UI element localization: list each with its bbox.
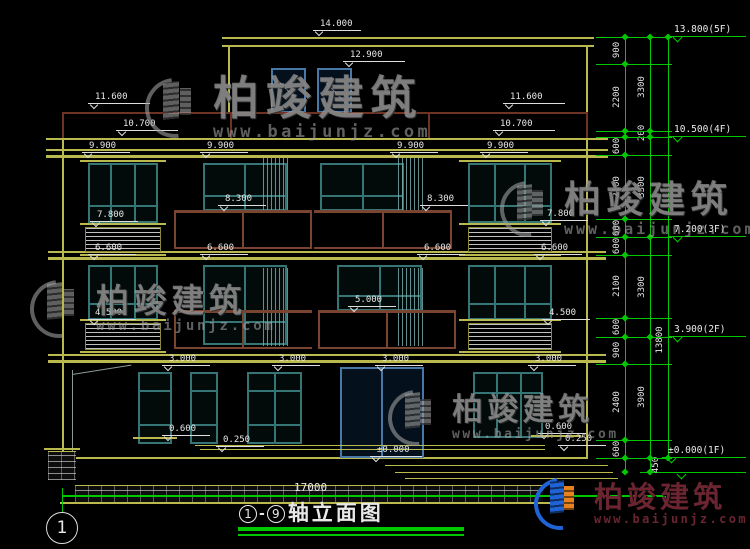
dim-label: 2200 bbox=[612, 86, 622, 108]
dim-label: 3300 bbox=[637, 276, 647, 298]
bay-window-2f-right bbox=[468, 265, 552, 320]
dim-ext-line bbox=[596, 337, 672, 338]
level-marker: 8.300 bbox=[218, 194, 266, 210]
watermark: 柏竣建筑 www.baijunjz.com bbox=[388, 390, 619, 446]
dim-label: 13800 bbox=[655, 326, 665, 353]
level-marker: 9.900 bbox=[480, 141, 528, 157]
bay-ledge bbox=[80, 351, 166, 353]
base-line bbox=[62, 457, 588, 459]
dim-label: 200 bbox=[637, 125, 647, 141]
penthouse-parapet-line bbox=[222, 37, 594, 39]
title-underline-thin bbox=[238, 534, 464, 536]
level-marker: 9.900 bbox=[390, 141, 438, 157]
dim-ext-line bbox=[596, 155, 672, 156]
watermark: 柏竣建筑 www.baijunjz.com bbox=[145, 74, 431, 142]
dim-ext-line bbox=[596, 255, 672, 256]
floor-level-value: ±0.000(1F) bbox=[662, 445, 746, 457]
level-marker: 11.600 bbox=[503, 92, 565, 108]
parapet-post bbox=[586, 112, 588, 140]
brand-url: www.baijunjz.com bbox=[213, 122, 431, 142]
parapet-post bbox=[62, 112, 64, 140]
axis-bubble: 1 bbox=[46, 512, 78, 544]
ramp-wall-line bbox=[72, 370, 73, 458]
louver-panel bbox=[468, 323, 552, 350]
level-marker: 14.000 bbox=[313, 19, 361, 35]
dim-label: 900 bbox=[612, 342, 622, 358]
axis-number: 1 bbox=[57, 518, 68, 538]
title-axis-to: 9 bbox=[267, 505, 285, 523]
dim-ext-line bbox=[596, 364, 672, 365]
dim-ext-line bbox=[596, 64, 672, 65]
level-marker: 6.600 bbox=[200, 243, 248, 259]
level-marker: 7.800 bbox=[90, 210, 138, 226]
level-marker: 3.000 bbox=[375, 354, 423, 370]
dim-label: 600 bbox=[612, 238, 622, 254]
railing-post bbox=[318, 310, 320, 349]
level-marker: ±0.000 bbox=[370, 445, 422, 461]
level-marker: 6.600 bbox=[88, 243, 136, 259]
dim-label: 3900 bbox=[637, 386, 647, 408]
level-marker: 9.900 bbox=[200, 141, 248, 157]
level-marker: 4.500 bbox=[542, 308, 590, 324]
dim-label: 600 bbox=[612, 138, 622, 154]
bay-ledge bbox=[459, 160, 561, 162]
level-value: 12.900 bbox=[343, 50, 405, 61]
brand-logo-icon bbox=[500, 181, 556, 237]
title-block: 1-9 轴立面图 bbox=[239, 503, 384, 524]
floor-band-3000 bbox=[48, 354, 606, 356]
railing-post bbox=[174, 210, 176, 249]
brand-logo-icon bbox=[388, 390, 444, 446]
dim-chain-line bbox=[668, 37, 669, 458]
floor-band-3000 bbox=[48, 360, 606, 363]
drawing-title: 轴立面图 bbox=[288, 503, 384, 524]
brand-logo-icon bbox=[534, 478, 586, 530]
brand-name: 柏竣建筑 bbox=[564, 181, 750, 220]
dim-label: 3300 bbox=[637, 76, 647, 98]
brand-url: www.baijunjz.com bbox=[594, 512, 748, 526]
floor-level-marker: ±0.000(1F) bbox=[662, 445, 746, 462]
watermark: 柏竣建筑 www.baijunjz.com bbox=[534, 478, 748, 530]
pillar-cap bbox=[44, 448, 80, 450]
dim-ext-line bbox=[596, 37, 672, 38]
level-marker: 3.000 bbox=[272, 354, 320, 370]
level-marker: 0.250 bbox=[216, 435, 264, 451]
step-line bbox=[385, 465, 608, 466]
bay-ledge bbox=[80, 160, 166, 162]
penthouse-parapet-line bbox=[222, 45, 594, 47]
louver-screen bbox=[263, 158, 291, 210]
level-marker: 3.000 bbox=[162, 354, 210, 370]
dim-ext-line bbox=[596, 131, 672, 132]
dim-ext-line bbox=[596, 318, 672, 319]
title-axis-from: 1 bbox=[239, 505, 257, 523]
level-marker: 9.900 bbox=[82, 141, 130, 157]
brand-logo-icon bbox=[30, 280, 88, 338]
railing-post bbox=[382, 210, 384, 249]
watermark: 柏竣建筑 www.baijunjz.com bbox=[30, 280, 276, 338]
floor-level-marker: 3.900(2F) bbox=[668, 324, 746, 341]
step-line bbox=[395, 472, 613, 473]
brand-name: 柏竣建筑 bbox=[96, 284, 276, 319]
level-value: 11.600 bbox=[503, 92, 565, 103]
brand-url: www.baijunjz.com bbox=[96, 318, 276, 334]
axis-leader bbox=[62, 497, 63, 513]
brand-name: 柏竣建筑 bbox=[213, 74, 431, 122]
bay-ledge bbox=[459, 351, 561, 353]
watermark: 柏竣建筑 www.baijunjz.com bbox=[500, 181, 750, 238]
railing-post bbox=[310, 210, 312, 249]
dim-tick bbox=[621, 468, 628, 475]
title-underline bbox=[238, 527, 464, 531]
dim-ext-line bbox=[596, 458, 672, 459]
overall-dim-text: 17000 bbox=[294, 481, 327, 494]
level-marker: 6.600 bbox=[417, 243, 465, 259]
brand-url: www.baijunjz.com bbox=[452, 427, 619, 442]
brick-pillar bbox=[48, 451, 76, 480]
brand-name: 柏竣建筑 bbox=[452, 394, 619, 427]
brand-logo-icon bbox=[145, 78, 205, 138]
level-marker: 6.600 bbox=[534, 243, 582, 259]
elevation-drawing-canvas: 17000 1 1-9 轴立面图 14.000 12.900 11.600 11… bbox=[0, 0, 750, 549]
dim-label: 2100 bbox=[612, 275, 622, 297]
level-value: ±0.000 bbox=[370, 445, 422, 456]
title-dash: - bbox=[259, 506, 265, 522]
level-marker: 8.300 bbox=[420, 194, 468, 210]
level-marker: 12.900 bbox=[343, 50, 405, 66]
ramp-line bbox=[72, 365, 131, 375]
dim-label: 600 bbox=[612, 319, 622, 335]
dim-ext-line bbox=[596, 137, 672, 138]
level-marker: 5.000 bbox=[348, 295, 396, 311]
window-3f-center-right bbox=[320, 163, 404, 211]
level-marker: 11.600 bbox=[88, 92, 150, 108]
railing-post bbox=[454, 310, 456, 349]
brand-url: www.baijunjz.com bbox=[564, 220, 750, 238]
floor-level-marker: 10.500(4F) bbox=[668, 124, 746, 141]
dim-label: 900 bbox=[612, 42, 622, 58]
level-value: 11.600 bbox=[88, 92, 150, 103]
level-marker: 10.700 bbox=[493, 119, 555, 135]
louver-screen bbox=[398, 268, 424, 346]
penthouse-wall bbox=[586, 47, 588, 113]
window-1f bbox=[247, 372, 302, 444]
brand-name: 柏竣建筑 bbox=[594, 482, 748, 512]
level-marker: 3.000 bbox=[528, 354, 576, 370]
level-value: 10.700 bbox=[493, 119, 555, 130]
railing-post bbox=[386, 310, 388, 349]
floor-level-marker: 13.800(5F) bbox=[668, 24, 746, 41]
level-marker: 0.600 bbox=[162, 424, 210, 440]
